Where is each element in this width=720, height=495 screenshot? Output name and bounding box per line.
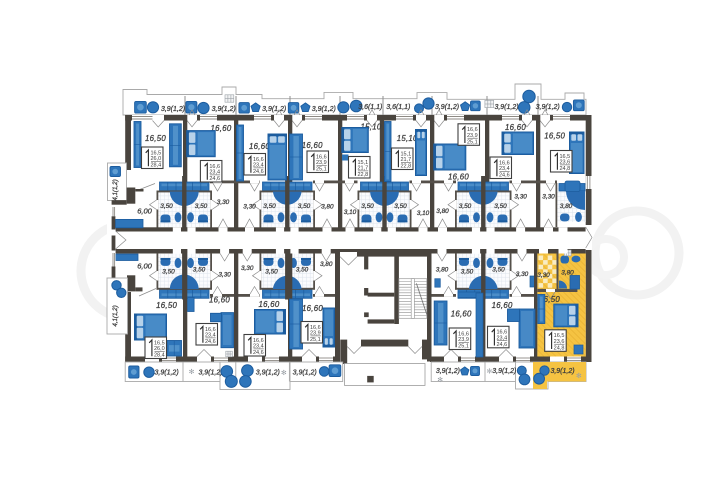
svg-text:23,4: 23,4 — [499, 166, 510, 172]
svg-text:4,1(1,2): 4,1(1,2) — [112, 179, 119, 200]
svg-text:23,9: 23,9 — [316, 160, 327, 166]
svg-text:3,80: 3,80 — [436, 267, 449, 274]
svg-text:✻: ✻ — [437, 376, 443, 384]
svg-text:3,80: 3,80 — [436, 208, 449, 215]
svg-text:3,50: 3,50 — [162, 269, 175, 276]
svg-text:3,50: 3,50 — [494, 203, 507, 210]
svg-text:3,50: 3,50 — [298, 203, 311, 210]
svg-text:23,4: 23,4 — [253, 344, 264, 350]
svg-text:26,0: 26,0 — [150, 156, 161, 162]
svg-text:23,9: 23,9 — [467, 133, 478, 139]
svg-text:3,9(1,2): 3,9(1,2) — [198, 370, 222, 377]
svg-text:✻: ✻ — [189, 368, 195, 376]
svg-text:3,9(1,2): 3,9(1,2) — [293, 370, 317, 377]
svg-text:15,10: 15,10 — [397, 134, 418, 143]
svg-text:21,7: 21,7 — [400, 157, 411, 163]
svg-text:3,30: 3,30 — [542, 194, 555, 201]
svg-text:26,0: 26,0 — [154, 346, 165, 352]
svg-text:23,9: 23,9 — [458, 337, 469, 343]
svg-text:16,50: 16,50 — [156, 301, 177, 310]
svg-text:23,6: 23,6 — [559, 160, 570, 166]
svg-text:28,4: 28,4 — [154, 353, 165, 359]
svg-text:3,30: 3,30 — [241, 265, 254, 272]
svg-text:16,60: 16,60 — [448, 172, 469, 181]
svg-text:3,80: 3,80 — [561, 270, 574, 277]
svg-text:3,50: 3,50 — [361, 203, 374, 210]
svg-text:3,9(1,2): 3,9(1,2) — [492, 368, 516, 375]
svg-text:3,9(1,2): 3,9(1,2) — [256, 370, 280, 377]
svg-text:23,4: 23,4 — [253, 163, 264, 169]
svg-text:21,7: 21,7 — [357, 166, 368, 172]
svg-text:3,10: 3,10 — [417, 210, 430, 217]
svg-text:6,00: 6,00 — [137, 207, 152, 216]
svg-text:3,9(1,2): 3,9(1,2) — [536, 104, 560, 111]
svg-text:24,6: 24,6 — [496, 342, 507, 348]
svg-text:3,50: 3,50 — [296, 267, 309, 274]
svg-text:16,60: 16,60 — [302, 304, 323, 313]
svg-text:3,9(1,2): 3,9(1,2) — [550, 368, 574, 375]
svg-text:25,1: 25,1 — [458, 344, 469, 350]
svg-text:3,9(1,2): 3,9(1,2) — [161, 106, 185, 113]
svg-text:3,50: 3,50 — [459, 203, 472, 210]
svg-text:23,4: 23,4 — [496, 335, 507, 341]
svg-text:3,9(1,2): 3,9(1,2) — [436, 368, 460, 375]
svg-text:3,6(1,1): 3,6(1,1) — [386, 104, 410, 111]
svg-text:3,9(1,2): 3,9(1,2) — [494, 104, 518, 111]
svg-text:3,30: 3,30 — [217, 199, 230, 206]
svg-text:24,6: 24,6 — [205, 339, 216, 345]
svg-text:4,1(1,2): 4,1(1,2) — [112, 305, 119, 326]
svg-text:✻: ✻ — [281, 369, 287, 377]
svg-text:24,8: 24,8 — [554, 346, 565, 352]
svg-text:16,60: 16,60 — [258, 300, 279, 309]
svg-text:3,9(1,2): 3,9(1,2) — [262, 106, 286, 113]
svg-text:3,6(1,1): 3,6(1,1) — [358, 104, 382, 111]
svg-text:3,80: 3,80 — [320, 261, 333, 268]
svg-text:22,8: 22,8 — [357, 172, 368, 178]
svg-text:16,50: 16,50 — [145, 134, 166, 143]
svg-text:3,50: 3,50 — [160, 203, 173, 210]
svg-text:23,4: 23,4 — [205, 333, 216, 339]
svg-text:22,8: 22,8 — [400, 164, 411, 170]
svg-text:3,30: 3,30 — [218, 272, 231, 279]
svg-text:24,6: 24,6 — [499, 173, 510, 179]
svg-text:3,50: 3,50 — [492, 267, 505, 274]
svg-text:3,10: 3,10 — [344, 209, 357, 216]
svg-text:16,60: 16,60 — [249, 142, 270, 151]
svg-text:3,80: 3,80 — [321, 204, 334, 211]
svg-text:3,30: 3,30 — [516, 271, 529, 278]
svg-text:16,60: 16,60 — [451, 310, 472, 319]
svg-text:3,50: 3,50 — [195, 203, 208, 210]
svg-text:3,9(1,2): 3,9(1,2) — [212, 106, 236, 113]
svg-text:16,60: 16,60 — [302, 141, 323, 150]
svg-text:3,80: 3,80 — [560, 203, 573, 210]
svg-text:3,50: 3,50 — [193, 267, 206, 274]
svg-text:3,50: 3,50 — [394, 203, 407, 210]
svg-text:23,6: 23,6 — [554, 339, 565, 345]
svg-text:24,6: 24,6 — [209, 176, 220, 182]
svg-text:28,4: 28,4 — [150, 163, 161, 169]
svg-text:16,50: 16,50 — [544, 132, 565, 141]
svg-text:3,9(1,2): 3,9(1,2) — [155, 370, 179, 377]
svg-text:24,8: 24,8 — [559, 166, 570, 172]
svg-text:3,30: 3,30 — [537, 272, 550, 279]
svg-text:3,50: 3,50 — [461, 269, 474, 276]
svg-text:3,50: 3,50 — [263, 203, 276, 210]
svg-text:3,9(1,2): 3,9(1,2) — [312, 106, 336, 113]
svg-text:3,30: 3,30 — [514, 194, 527, 201]
svg-text:25,1: 25,1 — [316, 167, 327, 173]
svg-text:23,4: 23,4 — [209, 170, 220, 176]
svg-text:24,6: 24,6 — [253, 169, 264, 175]
svg-text:✻: ✻ — [576, 372, 582, 380]
svg-text:6,00: 6,00 — [137, 262, 152, 271]
svg-text:3,50: 3,50 — [265, 269, 278, 276]
svg-text:23,9: 23,9 — [310, 331, 321, 337]
svg-text:25,1: 25,1 — [467, 140, 478, 146]
svg-text:25,1: 25,1 — [310, 337, 321, 343]
svg-text:3,30: 3,30 — [243, 204, 256, 211]
svg-text:16,60: 16,60 — [209, 296, 230, 305]
svg-text:16,60: 16,60 — [505, 123, 526, 132]
svg-text:24,6: 24,6 — [253, 350, 264, 356]
